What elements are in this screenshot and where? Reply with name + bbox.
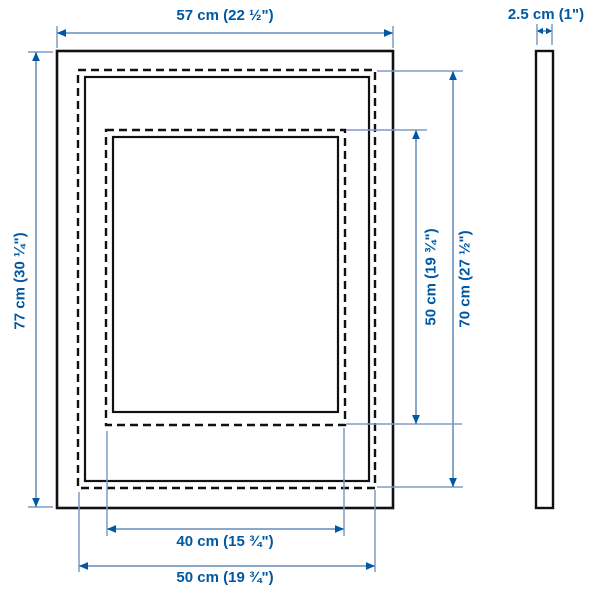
dim-depth xyxy=(537,24,552,45)
mat-opening-dashed-outline xyxy=(106,130,345,425)
dim-total-height xyxy=(28,52,53,507)
mat-opening-edge xyxy=(113,137,338,412)
label-depth: 2.5 cm (1") xyxy=(508,7,584,22)
label-total-height: 77 cm (30 ¼") xyxy=(13,232,28,329)
label-opening-height: 50 cm (19 ¾") xyxy=(424,228,439,325)
frame-side-view xyxy=(536,51,553,508)
label-picture-height: 70 cm (27 ½") xyxy=(458,230,473,327)
diagram-canvas: 57 cm (22 ½") 2.5 cm (1") 77 cm (30 ¼") … xyxy=(0,0,600,600)
label-total-width: 57 cm (22 ½") xyxy=(176,8,273,23)
label-opening-width: 40 cm (15 ¾") xyxy=(176,534,273,549)
dim-picture-width xyxy=(79,490,375,572)
label-picture-width: 50 cm (19 ¾") xyxy=(176,570,273,585)
dim-opening-height xyxy=(346,130,462,424)
dim-total-width xyxy=(57,26,393,48)
frame-side-profile xyxy=(536,51,553,508)
frame-dimension-drawing xyxy=(0,0,600,600)
